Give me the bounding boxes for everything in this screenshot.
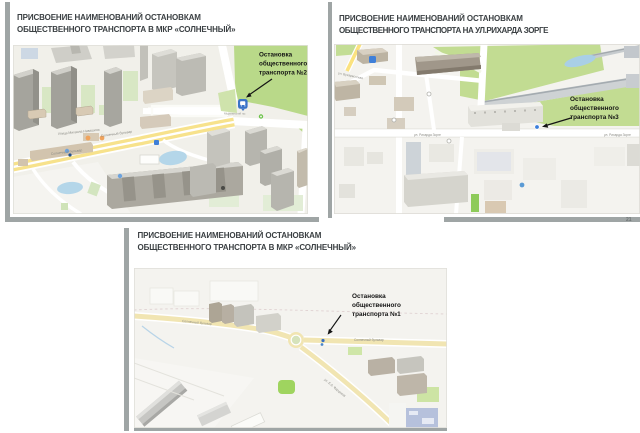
svg-text:Солнечный бульвар: Солнечный бульвар <box>354 338 384 342</box>
svg-text:Остановка: Остановка <box>259 52 293 59</box>
svg-text:ул. Рихарда Зорге: ул. Рихарда Зорге <box>604 133 631 137</box>
svg-text:общественного: общественного <box>570 104 619 112</box>
svg-text:Остановка: Остановка <box>352 293 386 300</box>
svg-text:транспорта №1: транспорта №1 <box>352 311 401 318</box>
svg-text:транспорта №2: транспорта №2 <box>259 70 308 77</box>
svg-text:Остановка: Остановка <box>570 96 604 103</box>
svg-text:общественного: общественного <box>259 60 307 68</box>
svg-text:ул. Рихарда Зорге: ул. Рихарда Зорге <box>414 133 441 137</box>
svg-text:общественного: общественного <box>352 301 401 309</box>
svg-text:Мурманский пр.: Мурманский пр. <box>224 112 246 116</box>
svg-text:транспорта №3: транспорта №3 <box>570 114 619 121</box>
